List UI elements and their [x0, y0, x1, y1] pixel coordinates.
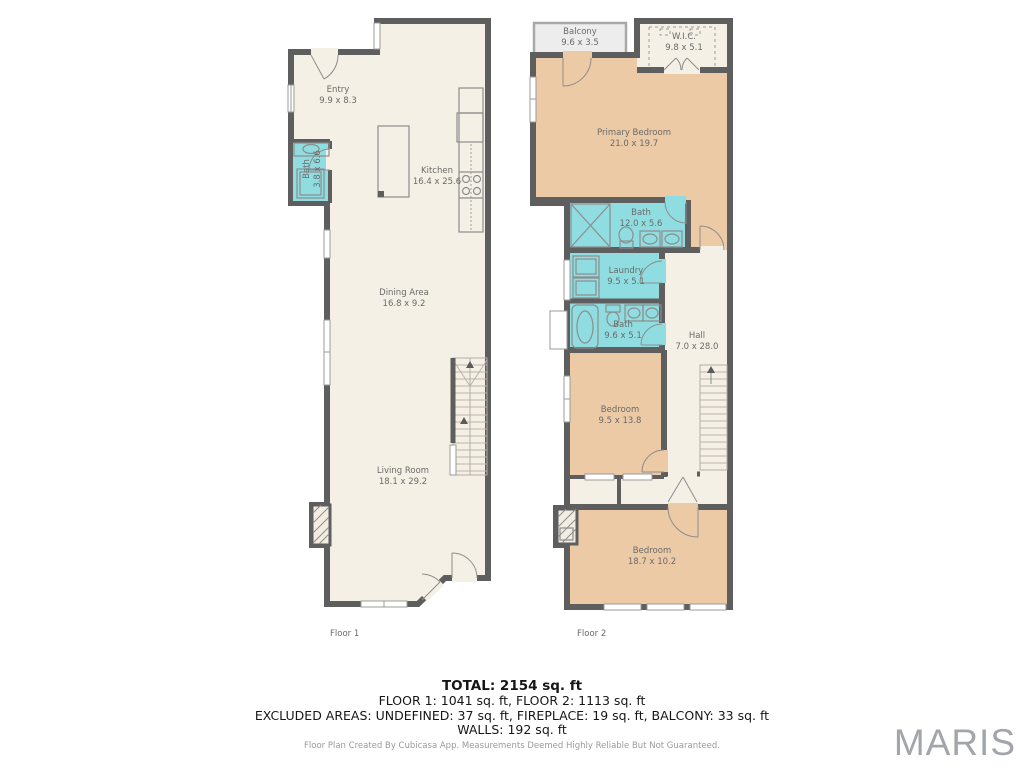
floor2-plan: [530, 21, 730, 610]
disclaimer: Floor Plan Created By Cubicasa App. Meas…: [0, 741, 1024, 751]
room-label-bath-floor2: Bath 9.6 x 5.1: [604, 320, 641, 342]
floor1-caption: Floor 1: [330, 629, 359, 639]
room-label-bath-primary: Bath 12.0 x 5.6: [620, 208, 663, 230]
floor1-plan: [288, 21, 488, 607]
floor-plan-svg: [0, 0, 1024, 768]
floor2-caption: Floor 2: [577, 629, 606, 639]
room-label-bath-floor1: Bath 3.8 x 6.6: [302, 150, 324, 187]
maris-watermark: MARIS: [894, 722, 1016, 764]
room-label-primary-bedroom: Primary Bedroom 21.0 x 19.7: [597, 128, 671, 150]
summary-total: TOTAL: 2154 sq. ft: [0, 679, 1024, 694]
summary-excluded-areas: EXCLUDED AREAS: UNDEFINED: 37 sq. ft, FI…: [0, 709, 1024, 724]
summary-floors: FLOOR 1: 1041 sq. ft, FLOOR 2: 1113 sq. …: [0, 694, 1024, 709]
room-label-wic: W.I.C. 9.8 x 5.1: [665, 32, 702, 54]
floor1-fireplace: [312, 505, 330, 545]
summary-walls: WALLS: 192 sq. ft: [0, 723, 1024, 738]
room-label-dining-area: Dining Area 16.8 x 9.2: [379, 288, 429, 310]
room-label-entry: Entry 9.9 x 8.3: [319, 85, 356, 107]
room-label-bedroom-mid: Bedroom 9.5 x 13.8: [599, 405, 642, 427]
room-label-hall: Hall 7.0 x 28.0: [676, 331, 719, 353]
room-label-balcony: Balcony 9.6 x 3.5: [561, 27, 598, 49]
room-label-kitchen: Kitchen 16.4 x 25.6: [413, 166, 461, 188]
floor-plan-page: Entry 9.9 x 8.3 Bath 3.8 x 6.6 Kitchen 1…: [0, 0, 1024, 768]
room-label-living-room: Living Room 18.1 x 29.2: [377, 466, 429, 488]
room-label-bedroom-bottom: Bedroom 18.7 x 10.2: [628, 546, 676, 568]
room-label-laundry: Laundry 9.5 x 5.1: [607, 266, 644, 288]
summary: TOTAL: 2154 sq. ft FLOOR 1: 1041 sq. ft,…: [0, 679, 1024, 738]
floor2-fireplace: [557, 509, 577, 544]
